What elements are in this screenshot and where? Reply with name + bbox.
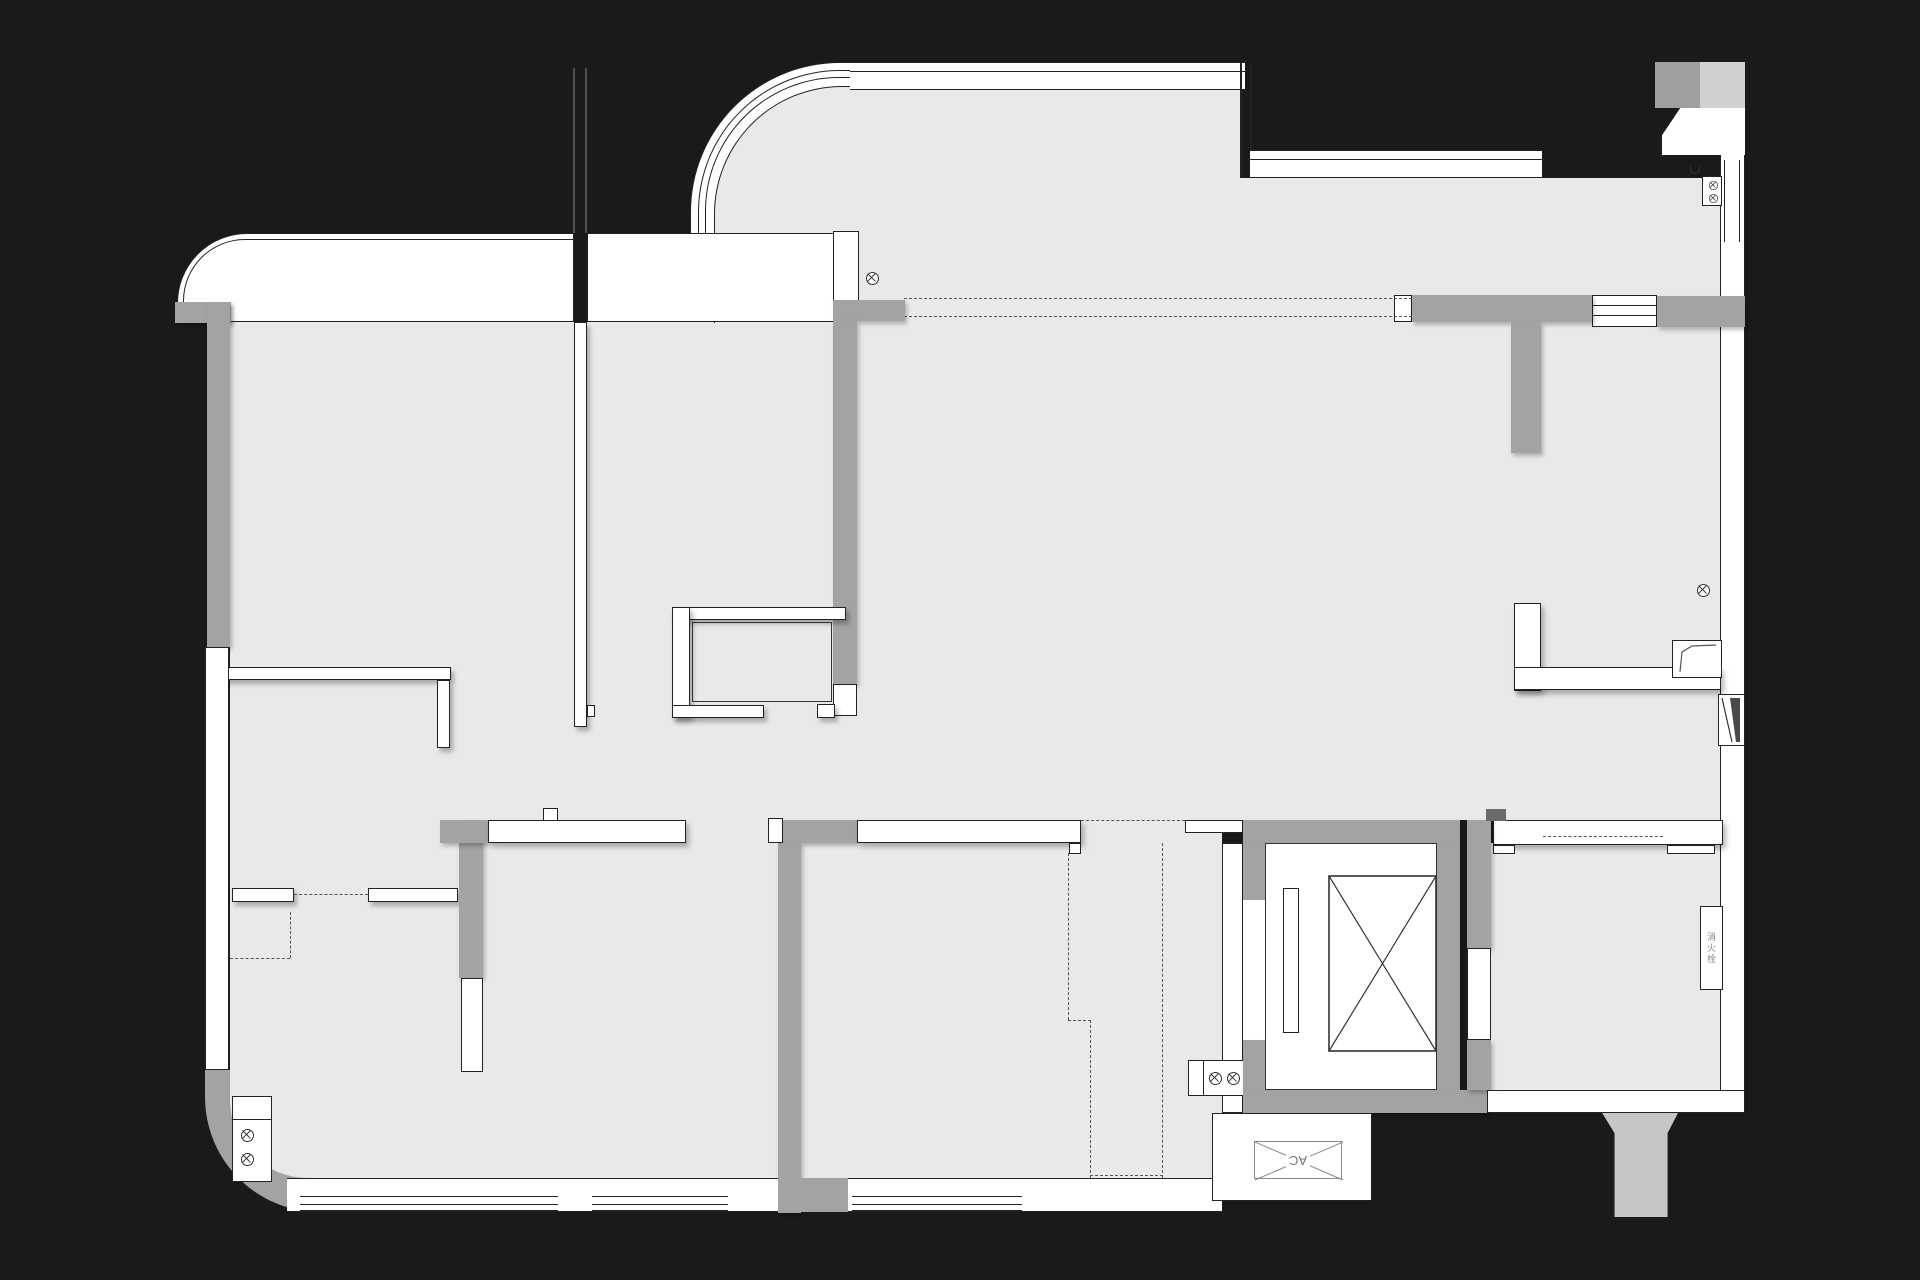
wall-gray-bottom-foot [778,1178,848,1212]
door-stop-block [1486,809,1506,821]
elevator-door-opening [1243,900,1265,1040]
duct-inner-outline [692,622,832,702]
wall-room2-top [488,820,686,843]
dashed-kitchen-h2 [1090,1175,1163,1176]
dashed-kitchen-v3 [1162,843,1163,1178]
step-line-a [1240,62,1242,178]
elevator-wall-left-lower [1243,1040,1265,1090]
floor-main-living [230,322,1720,820]
ac-bay-box: AC [1212,1113,1372,1201]
window-bottom-a [300,1196,558,1211]
wall-landing-jamb-right [1667,845,1715,854]
elevator-wall-right [1437,843,1460,1090]
riser-box-divider [233,1119,271,1120]
sink-bowl-icon [1209,1072,1222,1085]
wall-room3-top-end [1069,843,1081,854]
balcony-band-left [177,233,574,322]
balcony-band-middle [587,233,834,322]
wall-bedroom1-bottom [223,667,451,680]
window-strip-top-right [1250,150,1542,178]
door-swing-tick [1690,166,1700,174]
pipe-riser-icon [866,272,879,285]
pipe-riser-icon [1709,194,1718,203]
neighbor-mass-light [1700,62,1745,108]
counter-diagonal-icon [1672,640,1722,678]
elevator-shaft-x-icon [1328,875,1437,1052]
window-strip-top [850,62,1245,90]
wall-gray-t-vertical [1511,322,1541,453]
wall-white-landing-left [1467,948,1491,1040]
dashed-landing-lintel [1543,836,1663,837]
wall-gray-room2-corner [440,820,488,843]
sink-fixture [1188,1060,1244,1096]
window-dining-right [1592,295,1657,327]
ac-label: AC [1286,1153,1310,1168]
wall-gray-room3-corner-h [783,820,857,843]
riser-box-bottom-left [232,1096,272,1182]
fire-hydrant-label: 消火栓 [1705,932,1718,965]
floor-plan-canvas: 消火栓 AC [0,0,1920,1280]
wall-bath-bottom-left [232,888,294,902]
wall-white-room-divider [461,978,483,1072]
window-bottom-c [852,1196,1022,1211]
fire-hydrant-box: 消火栓 [1700,906,1723,990]
wall-bedroom1-right [574,322,587,727]
pipe-riser-icon [241,1129,254,1142]
wall-bath-bottom-right [368,888,458,902]
dashed-kitchen-v2 [1090,1020,1091,1178]
window-right-top [1724,160,1740,242]
floor-bottom-rooms [230,820,1222,1178]
wall-white-left-vertical [205,647,229,1070]
pipe-riser-icon [241,1153,254,1166]
pipe-riser-icon [1697,584,1710,597]
elevator-wall-left-upper [1243,843,1265,900]
window-bottom-b [592,1196,728,1211]
wall-pier-left-of-twall [1394,295,1412,322]
dashed-casework-v [290,912,291,958]
wall-gray-landing-left-lower [1467,1040,1491,1090]
elevator-wall-bottom [1243,1090,1487,1113]
wall-room3-top [857,820,1081,843]
balcony-pillar [833,231,859,301]
duct-wall-bottom [672,705,764,718]
duct-wall-foot [817,704,835,718]
dashed-kitchen-v1 [1068,853,1069,1020]
wall-landing-bottom [1487,1090,1745,1113]
duct-wall-left [672,607,690,718]
wall-gray-right-of-window [1657,296,1745,327]
dashed-track-line-b [904,316,1412,317]
elevator-door-panel [1283,888,1299,1033]
wall-gray-column-vertical [833,321,857,684]
pipe-riser-icon [1709,181,1718,190]
dashed-kitchen-h1 [1068,1020,1091,1021]
dashed-door-opening-bath [294,894,368,895]
dashed-kitchen-opening [1081,820,1185,821]
neighbor-mass-white [1662,108,1745,155]
wall-gray-room-divider [459,820,483,978]
wall-landing-jamb-left [1493,845,1515,854]
wall-room3-door-jamb [768,818,783,843]
shutter-window-hatch-icon [1718,694,1745,746]
floor-entry-landing [1490,843,1720,1090]
wall-cap-white [833,684,857,716]
riser-box-top-right [1702,176,1722,206]
wall-room2-tab [543,808,558,821]
wall-gray-landing-left-upper [1467,820,1491,948]
ac-unit-outline: AC [1254,1141,1342,1179]
duct-wall-top [672,607,846,620]
wall-gray-left-vertical [207,302,230,647]
wall-bedroom1-bottom-return [437,680,450,748]
sink-divider [1203,1061,1204,1095]
wall-gray-column-horizontal [833,300,905,321]
wall-gray-t-horizontal [1412,295,1592,322]
wall-landing-top [1493,820,1723,845]
dashed-track-line-a [904,298,1412,299]
dashed-casework-h [230,958,290,959]
balcony-band-left-inner-line [183,239,573,321]
wall-gray-room3-corner-v [778,843,801,1213]
balcony-divider-line-a [573,68,575,233]
elevator-wall-top [1243,820,1460,843]
wall-bedroom1-right-tab [587,705,595,717]
balcony-divider-line-b [585,68,587,233]
wall-kitchen-tab [1185,820,1243,833]
sink-bowl-icon [1227,1072,1240,1085]
